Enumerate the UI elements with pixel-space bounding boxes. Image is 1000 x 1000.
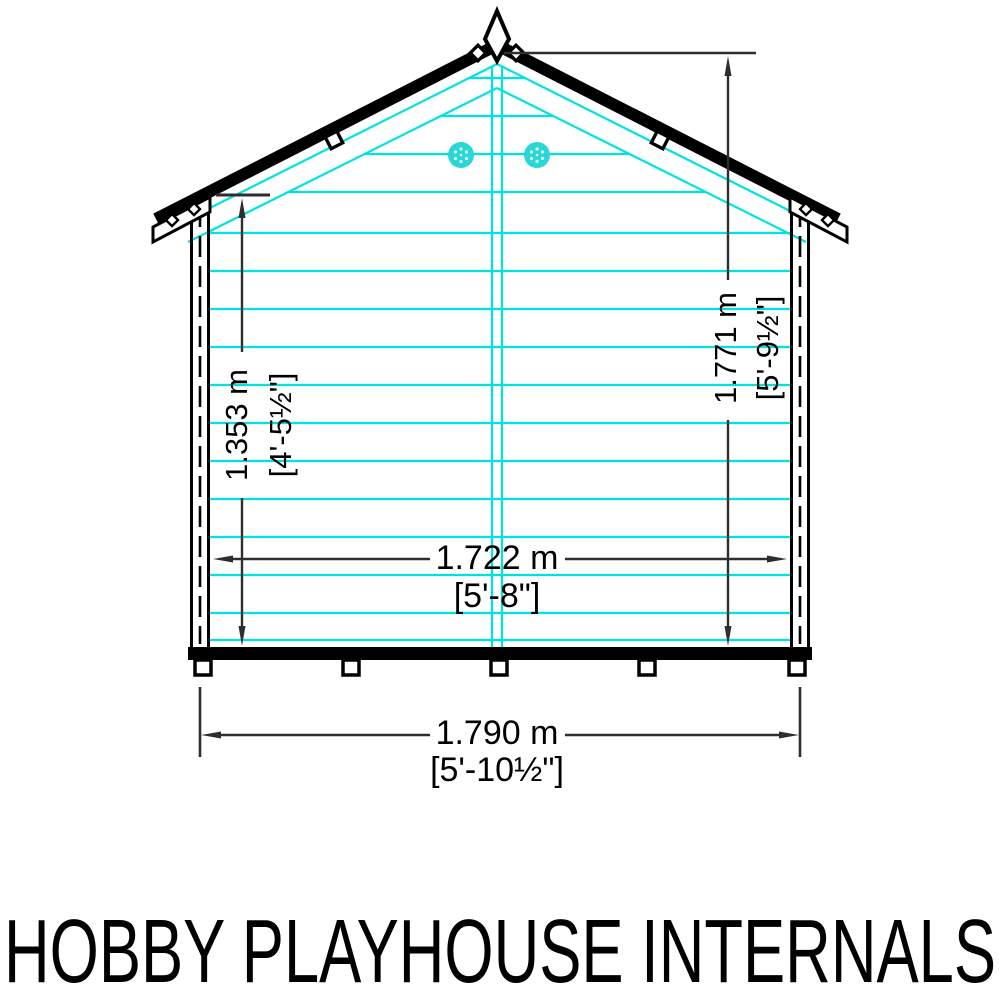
right-wall (792, 197, 809, 648)
dim-ridge-height-metric: 1.771 m (708, 292, 743, 404)
drawing-title: HOBBY PLAYHOUSE INTERNALS (4, 902, 996, 1000)
dim-internal-width: 1.722 m [5'-8"] (213, 539, 787, 615)
rafter-left-lower (188, 88, 497, 242)
dim-internal-width-arrow-right (767, 556, 787, 563)
vent-right (524, 142, 550, 168)
floor (188, 647, 812, 660)
dim-wall-height-arrow-down (239, 626, 246, 646)
foot (343, 660, 359, 675)
dim-ridge-height-arrow-down (725, 626, 732, 646)
foot (491, 660, 507, 675)
dim-internal-width-metric: 1.722 m (436, 539, 559, 577)
left-wall (192, 197, 209, 648)
dim-external-width: 1.790 m [5'-10½"] (200, 687, 800, 789)
dim-wall-height: 1.353 m [4'-5½"] (216, 195, 298, 646)
dim-wall-height-metric: 1.353 m (219, 369, 254, 481)
dim-ridge-height-imperial: [5'-9½"] (750, 296, 785, 401)
foot (789, 660, 805, 675)
dim-external-width-imperial: [5'-10½"] (430, 751, 564, 789)
dim-external-width-arrow-right (779, 732, 799, 739)
feet (195, 660, 805, 675)
playhouse-drawing: 1.353 m [4'-5½"] 1.771 m [5'-9½"] 1.722 … (0, 0, 1000, 1000)
dim-wall-height-imperial: [4'-5½"] (263, 373, 298, 478)
vent-left (448, 142, 474, 168)
dim-external-width-metric: 1.790 m (436, 714, 559, 752)
foot (639, 660, 655, 675)
foot (195, 660, 211, 675)
dim-internal-width-imperial: [5'-8"] (454, 577, 541, 615)
